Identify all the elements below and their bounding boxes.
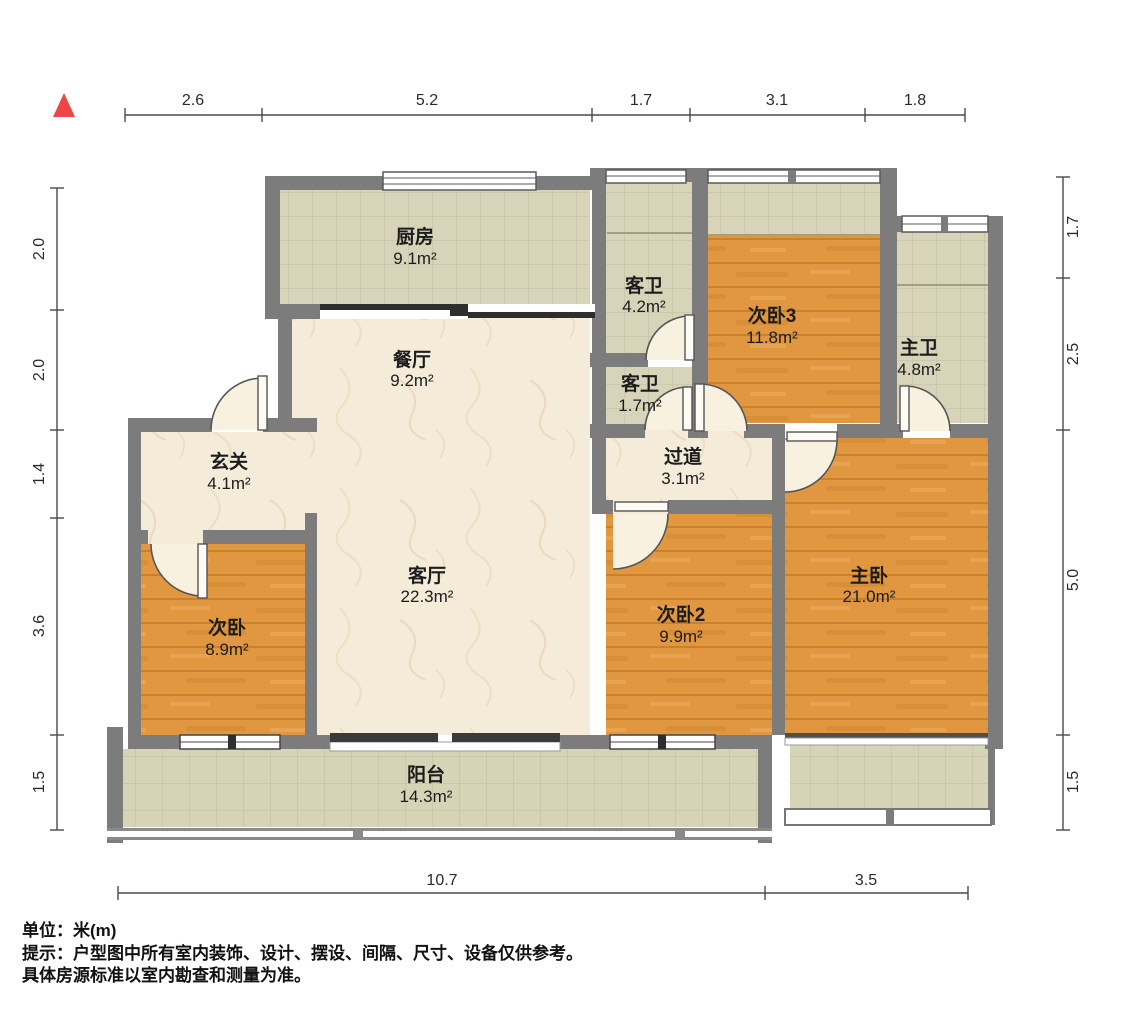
- room-dining-floor: [292, 304, 590, 424]
- room-master-bath-area: 4.8m²: [897, 360, 941, 379]
- floorplan-page: 厨房 9.1m² 餐厅 9.2m² 客厅 22.3m² 玄关 4.1m² 次卧 …: [0, 0, 1125, 1011]
- room-living-label: 客厅: [408, 564, 446, 587]
- master-bath-bay-window: [902, 216, 988, 232]
- dim-top-4: 3.1: [766, 92, 788, 109]
- room-master-area: 21.0m²: [843, 587, 896, 606]
- dim-bottom-2: 3.5: [855, 872, 877, 889]
- dim-top-5: 1.8: [904, 92, 926, 109]
- dim-left-1: 2.0: [31, 238, 48, 260]
- master-balcony-window: [785, 733, 988, 745]
- master-bath-bay-floor: [897, 232, 988, 285]
- room-dining-label: 餐厅: [393, 348, 431, 371]
- room-guest-bath-label: 客卫: [625, 274, 663, 297]
- bedroom1-balcony-window: [180, 735, 280, 749]
- room-guest-bath-area: 4.2m²: [622, 297, 666, 316]
- dim-top-2: 5.2: [416, 92, 438, 109]
- right-balcony-floor: [790, 737, 988, 809]
- footer-tip-line2: 具体房源标准以室内勘查和测量为准。: [21, 965, 311, 985]
- bedroom3-bay-floor: [708, 182, 880, 235]
- room-guest-bath-small-area: 1.7m²: [618, 396, 662, 415]
- north-arrow-icon: [53, 93, 75, 117]
- bedroom3-bay-window: [708, 170, 880, 183]
- balcony-railing: [107, 828, 772, 840]
- room-living-floor: [305, 424, 590, 735]
- dim-bottom-1: 10.7: [426, 872, 457, 889]
- footer-notes: 单位：米(m) 提示：户型图中所有室内装饰、设计、摆设、间隔、尺寸、设备仅供参考…: [21, 920, 583, 985]
- dim-right-3: 5.0: [1065, 569, 1082, 591]
- room-master-bath-label: 主卫: [900, 337, 938, 359]
- footer-tip-line1: 提示：户型图中所有室内装饰、设计、摆设、间隔、尺寸、设备仅供参考。: [22, 943, 583, 963]
- room-kitchen-label: 厨房: [396, 225, 434, 248]
- room-kitchen-area: 9.1m²: [393, 249, 437, 268]
- room-bedroom2-area: 9.9m²: [659, 627, 703, 646]
- room-bedroom1-label: 次卧: [208, 616, 246, 639]
- room-kitchen-floor: [280, 190, 590, 304]
- room-hallway-area: 3.1m²: [661, 469, 705, 488]
- room-dining-area: 9.2m²: [390, 371, 434, 390]
- room-master-label: 主卧: [850, 565, 888, 587]
- dim-left-2: 2.0: [31, 359, 48, 381]
- room-bedroom2-label: 次卧2: [657, 603, 706, 626]
- kitchen-window: [383, 172, 536, 190]
- dim-top-3: 1.7: [630, 92, 652, 109]
- living-balcony-slider: [330, 733, 560, 751]
- dim-top-1: 2.6: [182, 92, 204, 109]
- guest-bath-bay-floor: [606, 182, 692, 233]
- entry-door: [211, 376, 267, 430]
- guest-bath-bay-window: [606, 170, 686, 183]
- room-entry-label: 玄关: [210, 450, 248, 473]
- dim-left-4: 3.6: [31, 615, 48, 637]
- floorplan-svg: 厨房 9.1m² 餐厅 9.2m² 客厅 22.3m² 玄关 4.1m² 次卧 …: [0, 0, 1125, 1011]
- room-entry-area: 4.1m²: [207, 474, 251, 493]
- bedroom2-balcony-window: [610, 735, 715, 749]
- dim-left-5: 1.5: [31, 771, 48, 793]
- floor-fills: [123, 182, 988, 827]
- dim-left-3: 1.4: [31, 463, 48, 485]
- kitchen-pass-slider: [320, 304, 595, 319]
- room-hallway-label: 过道: [664, 445, 702, 468]
- room-bedroom3-label: 次卧3: [748, 304, 797, 327]
- room-balcony-area: 14.3m²: [400, 787, 453, 806]
- room-bedroom3-area: 11.8m²: [746, 328, 798, 347]
- room-bedroom1-area: 8.9m²: [205, 640, 249, 659]
- room-balcony-label: 阳台: [407, 763, 445, 786]
- room-living-area: 22.3m²: [401, 587, 454, 606]
- dim-right-2: 2.5: [1065, 343, 1082, 365]
- room-guest-bath-small-label: 客卫: [621, 372, 659, 395]
- footer-unit: 单位：米(m): [22, 920, 116, 940]
- right-balcony-window-band: [785, 809, 991, 825]
- dim-right-4: 1.5: [1065, 771, 1082, 793]
- dim-right-1: 1.7: [1065, 216, 1082, 238]
